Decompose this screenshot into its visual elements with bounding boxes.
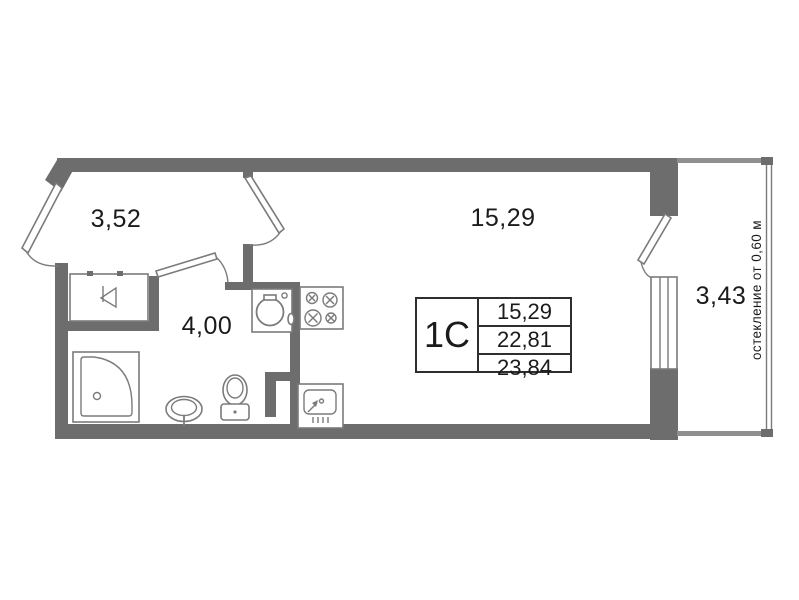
room-door-leaf — [245, 176, 284, 233]
bathroom-door-arc — [216, 257, 228, 283]
area-value-row: 22,81 — [479, 325, 570, 353]
toilet-button-icon — [233, 410, 236, 413]
shower — [73, 352, 139, 422]
room-area-label: 15,29 — [458, 204, 548, 233]
balcony-door-arc — [641, 262, 652, 278]
washing-machine — [252, 289, 294, 332]
balcony-door — [638, 214, 671, 278]
glazing-tick-top — [761, 157, 773, 165]
balcony-window — [651, 277, 677, 369]
washer-detergent-tray — [264, 295, 276, 300]
washer-side-detail — [288, 314, 294, 325]
entrance-door — [22, 183, 62, 266]
wardrobe-box — [70, 274, 148, 321]
plan-symbols-layer — [0, 0, 799, 600]
kitchen-sink — [298, 384, 343, 428]
area-values-column: 15,29 22,81 23,84 — [479, 299, 570, 371]
wardrobe-tick — [117, 271, 123, 276]
bathroom-door-leaf — [156, 253, 217, 277]
glazing-note-label: остекление от 0,60 м — [749, 180, 765, 400]
floor-plan-canvas: 3,52 15,29 4,00 3,43 остекление от 0,60 … — [0, 0, 799, 600]
area-value-row: 23,84 — [479, 353, 570, 381]
balcony-door-leaf — [638, 214, 671, 264]
unit-type-cell: 1С — [417, 299, 479, 371]
bathroom-sink — [166, 397, 202, 427]
bathroom-door — [156, 253, 228, 283]
room-door-arc — [249, 231, 281, 245]
wardrobe-tick — [87, 271, 93, 276]
balcony-area-label: 3,43 — [684, 282, 758, 311]
room-door — [245, 176, 284, 245]
stove — [300, 287, 343, 329]
hall-area-label: 3,52 — [79, 205, 153, 234]
toilet — [221, 375, 249, 420]
wardrobe — [70, 271, 148, 321]
apartment-info-table: 1С 15,29 22,81 23,84 — [415, 297, 572, 373]
entrance-door-leaf — [22, 183, 62, 253]
entrance-door-arc — [26, 251, 58, 266]
balcony-window-frame — [651, 277, 677, 369]
corridor-area-label: 4,00 — [170, 312, 244, 341]
glazing-tick-bottom — [761, 429, 773, 437]
area-value-row: 15,29 — [479, 299, 570, 325]
